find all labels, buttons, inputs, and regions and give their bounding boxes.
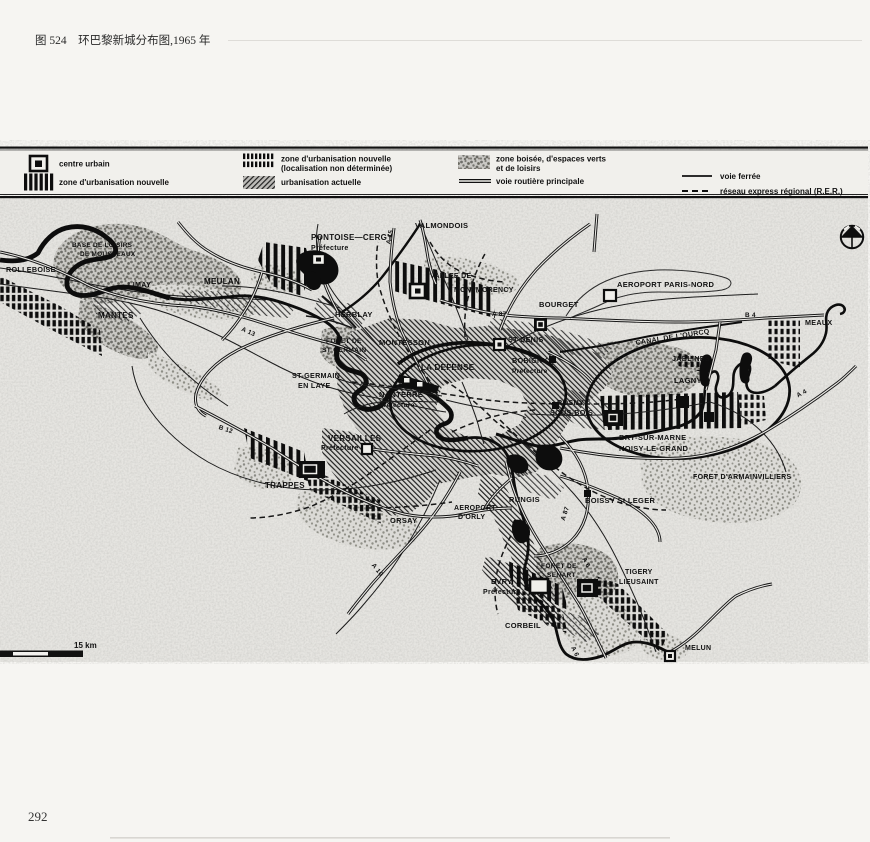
svg-text:SENART: SENART	[547, 572, 576, 579]
svg-text:AEROPORT PARIS-NORD: AEROPORT PARIS-NORD	[617, 280, 715, 289]
svg-text:BRY-SUR-MARNE: BRY-SUR-MARNE	[619, 433, 686, 442]
svg-text:ST GERMAIN: ST GERMAIN	[322, 347, 366, 354]
svg-text:urbanisation actuelle: urbanisation actuelle	[281, 178, 362, 187]
svg-text:15 km: 15 km	[74, 641, 97, 650]
svg-text:et de loisirs: et de loisirs	[496, 164, 541, 173]
svg-text:AEROPORT: AEROPORT	[454, 505, 496, 512]
svg-text:BASE DE LOISIRS: BASE DE LOISIRS	[72, 242, 133, 249]
svg-text:Préfecture: Préfecture	[379, 402, 415, 409]
svg-text:FORET D'ARMAINVILLIERS: FORET D'ARMAINVILLIERS	[693, 474, 792, 481]
svg-text:Préfecture: Préfecture	[512, 368, 548, 375]
svg-text:LA DEFENSE: LA DEFENSE	[421, 363, 475, 372]
svg-text:NOISY-LE-GRAND: NOISY-LE-GRAND	[619, 444, 688, 453]
svg-text:voie routière principale: voie routière principale	[496, 177, 585, 186]
svg-text:BOISSY St LEGER: BOISSY St LEGER	[585, 496, 655, 505]
svg-text:Préfecture: Préfecture	[321, 445, 359, 452]
svg-text:Préfecture: Préfecture	[483, 589, 521, 596]
svg-text:zone boisée, d'espaces verts: zone boisée, d'espaces verts	[496, 155, 607, 164]
svg-text:MONTESSON: MONTESSON	[379, 338, 430, 347]
svg-text:PONTOISE—CERGY: PONTOISE—CERGY	[311, 233, 393, 242]
svg-text:MEAUX: MEAUX	[805, 318, 832, 327]
svg-text:FORET DE: FORET DE	[326, 338, 362, 345]
svg-text:Préfecture: Préfecture	[311, 245, 349, 252]
svg-text:BOURGET: BOURGET	[539, 300, 579, 309]
svg-text:ROLLEBOISE: ROLLEBOISE	[6, 265, 56, 274]
svg-text:VALLEE DE: VALLEE DE	[430, 273, 471, 280]
svg-text:HERBLAY: HERBLAY	[335, 310, 373, 319]
svg-text:JABLINES: JABLINES	[672, 354, 710, 363]
svg-text:LIMAY: LIMAY	[128, 280, 151, 289]
svg-text:BOBIGNY: BOBIGNY	[512, 356, 548, 365]
svg-text:MELUN: MELUN	[685, 645, 711, 652]
svg-text:SOUS-BOIS: SOUS-BOIS	[550, 408, 593, 417]
svg-text:ST-GERMAIN: ST-GERMAIN	[292, 371, 340, 380]
svg-text:MEULAN: MEULAN	[204, 277, 240, 286]
svg-text:EVRY: EVRY	[491, 577, 512, 586]
svg-text:TRAPPES: TRAPPES	[265, 481, 305, 490]
svg-text:(localisation non déterminée): (localisation non déterminée)	[281, 164, 392, 173]
svg-text:VALMONDOIS: VALMONDOIS	[415, 221, 468, 230]
svg-text:zone d'urbanisation nouvelle: zone d'urbanisation nouvelle	[59, 178, 169, 187]
svg-text:CORBEIL: CORBEIL	[505, 621, 541, 630]
svg-text:réseau express régional (R.E.R: réseau express régional (R.E.R.)	[720, 187, 843, 196]
svg-text:voie ferrée: voie ferrée	[720, 172, 761, 181]
svg-text:RUNGIS: RUNGIS	[509, 495, 540, 504]
svg-text:DE MOUSSEAUX: DE MOUSSEAUX	[80, 251, 136, 258]
svg-text:图 524 环巴黎新城分布图,1965 年: 图 524 环巴黎新城分布图,1965 年	[35, 33, 210, 47]
svg-text:ORSAY: ORSAY	[390, 516, 417, 525]
svg-text:FORET DE: FORET DE	[541, 563, 577, 570]
svg-text:A 87: A 87	[492, 311, 507, 318]
svg-text:LAGNY: LAGNY	[674, 376, 702, 385]
svg-text:ST DENIS: ST DENIS	[508, 335, 544, 344]
svg-text:B 4: B 4	[745, 312, 756, 319]
svg-text:MONTMORENCY: MONTMORENCY	[454, 287, 514, 294]
svg-text:TIGERY: TIGERY	[625, 569, 653, 576]
svg-text:D'ORLY: D'ORLY	[458, 514, 485, 521]
svg-text:MANTES: MANTES	[98, 311, 134, 320]
svg-text:EN LAYE: EN LAYE	[298, 381, 331, 390]
svg-text:ROSNY: ROSNY	[557, 398, 584, 407]
svg-text:LIEUSAINT: LIEUSAINT	[619, 579, 659, 586]
svg-text:VERSAILLES: VERSAILLES	[328, 434, 382, 443]
svg-text:centre urbain: centre urbain	[59, 160, 110, 169]
svg-text:292: 292	[28, 809, 48, 824]
svg-text:NANTERRE: NANTERRE	[379, 390, 423, 399]
svg-text:zone d'urbanisation nouvelle: zone d'urbanisation nouvelle	[281, 155, 391, 164]
